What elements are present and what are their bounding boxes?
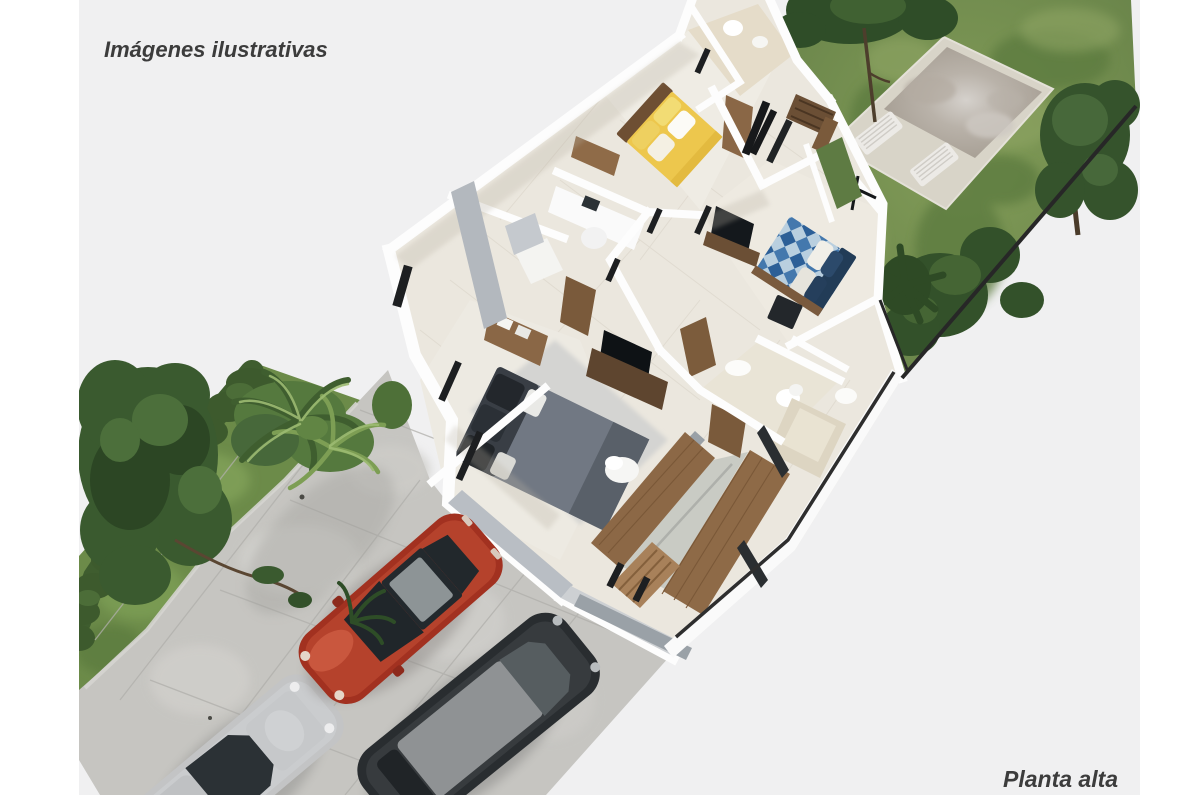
svg-text:Planta alta: Planta alta [1003, 766, 1118, 792]
svg-text:Imágenes ilustrativas: Imágenes ilustrativas [104, 37, 328, 62]
